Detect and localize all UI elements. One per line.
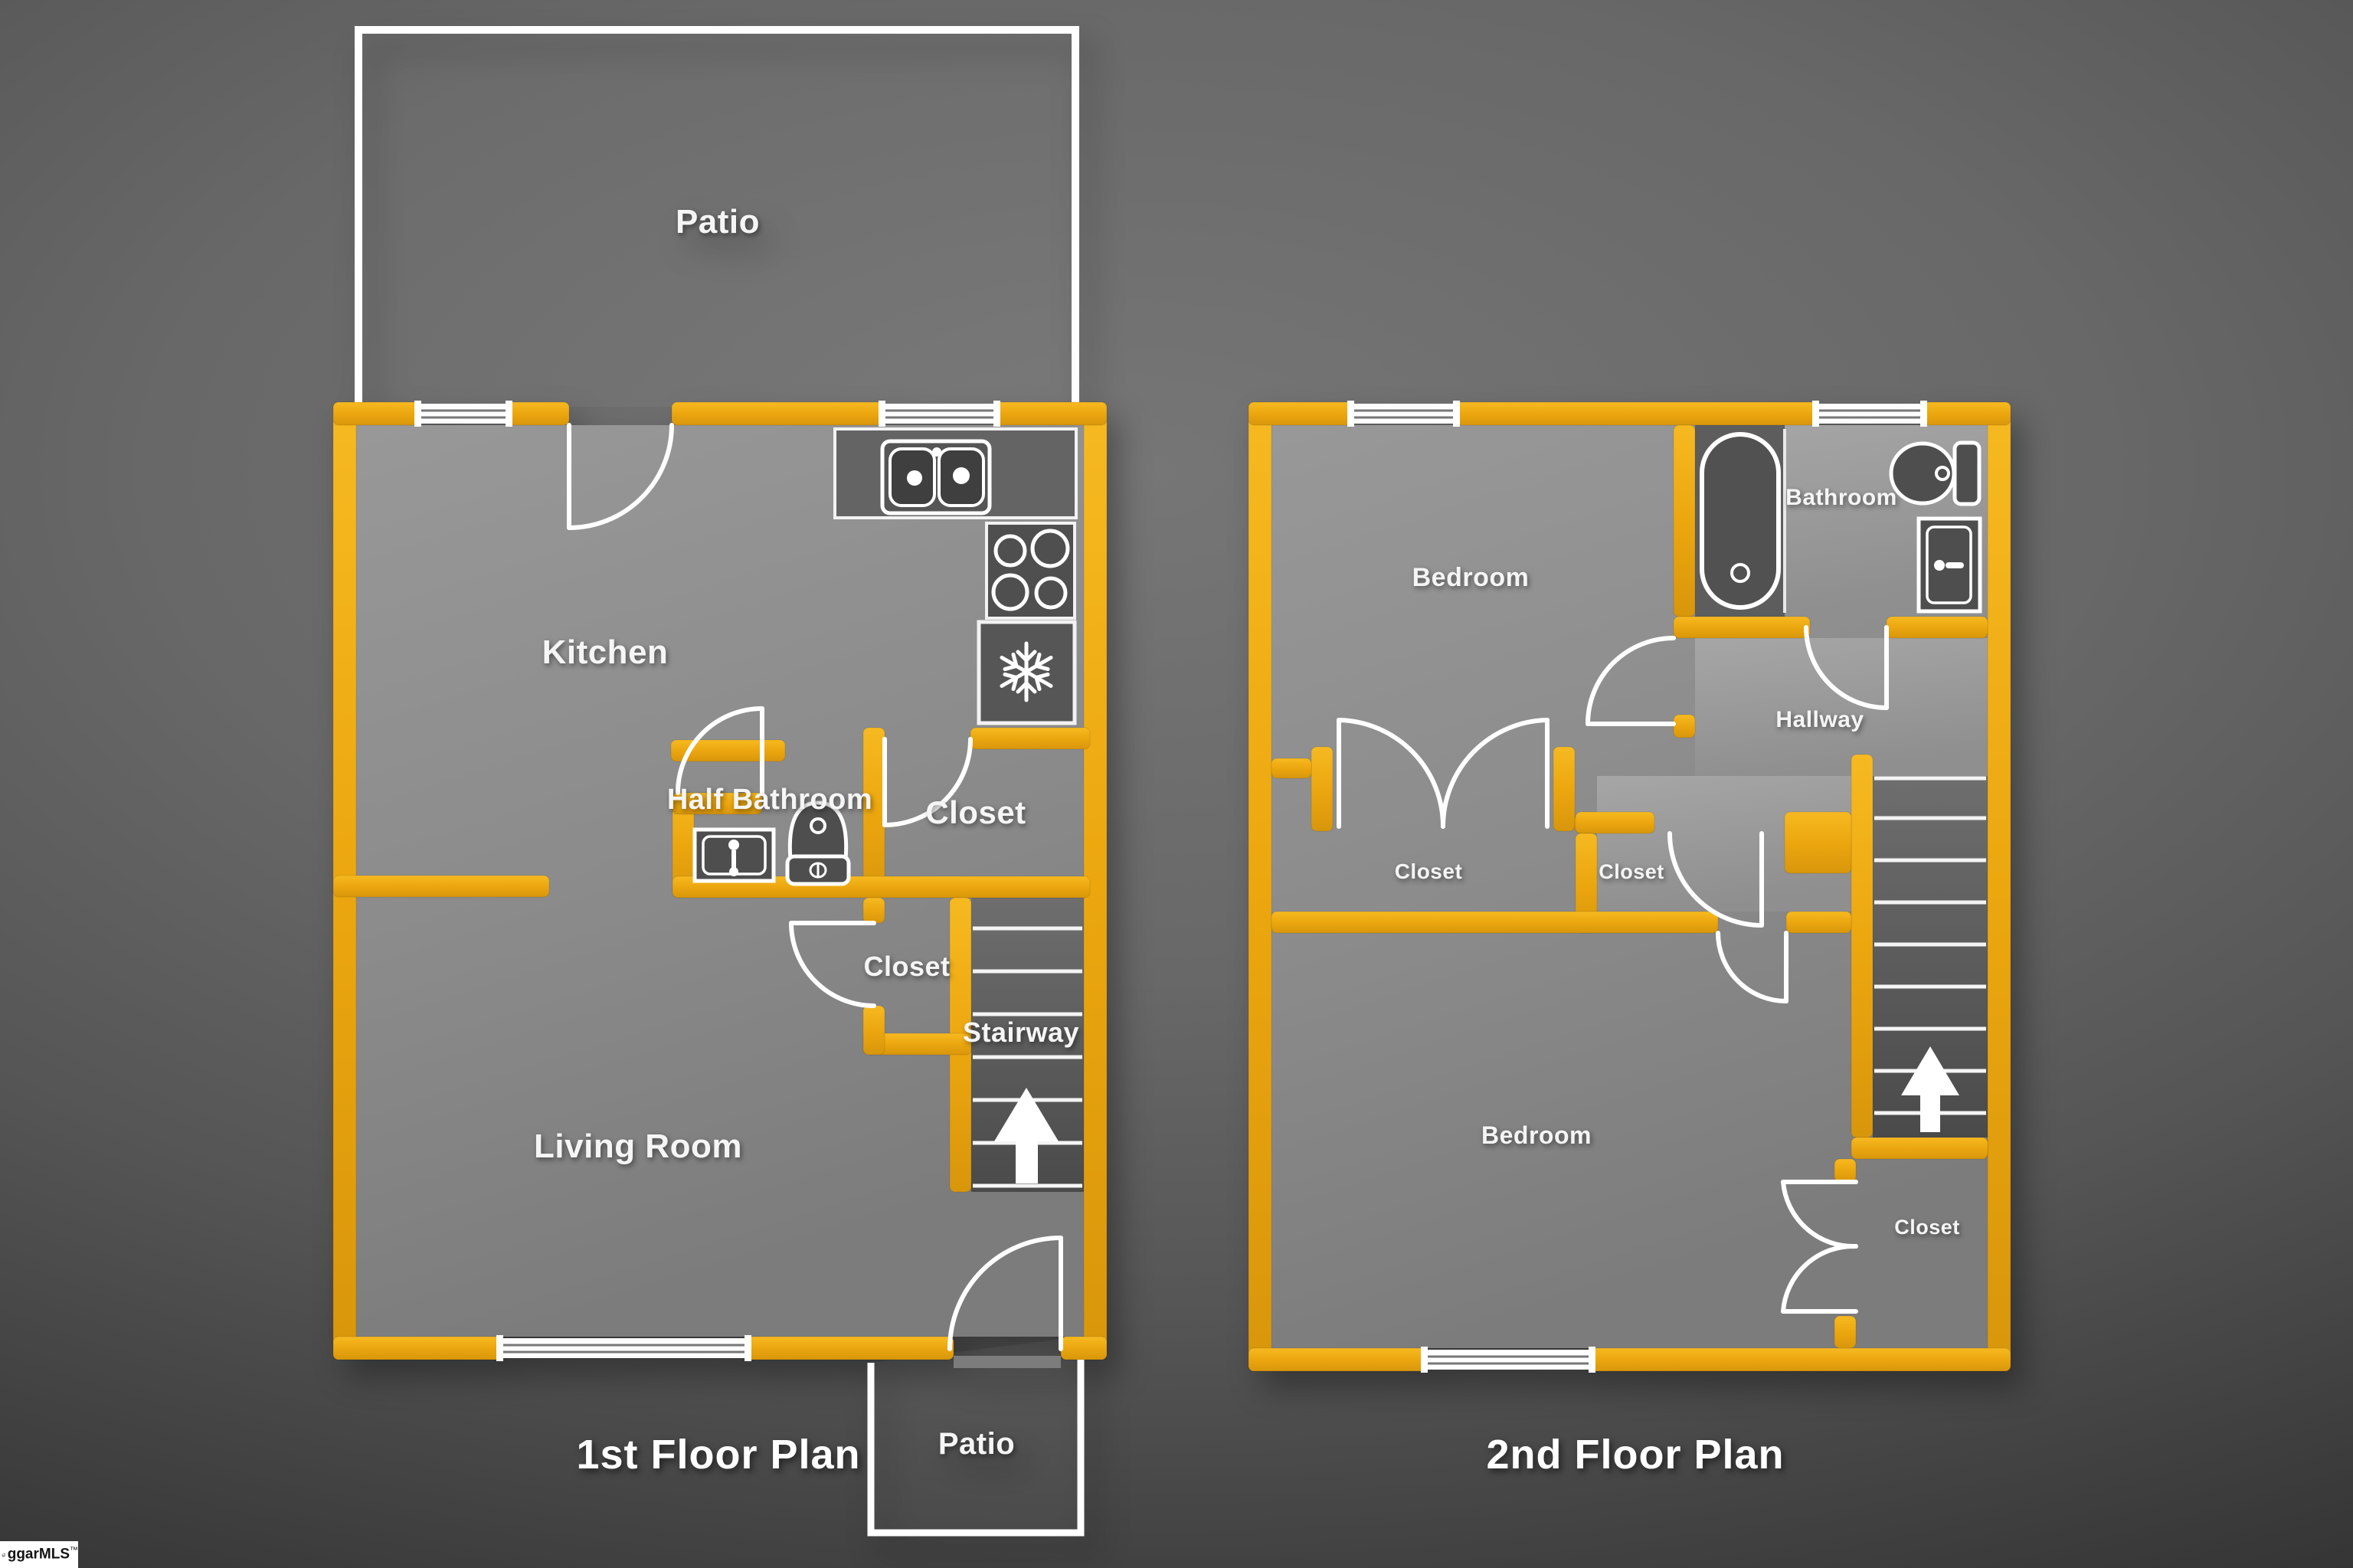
- window: [1421, 1347, 1595, 1373]
- first-floor-plan: Patio Kitchen Half Bathroom Closet Close…: [333, 30, 1107, 1533]
- window: [1347, 401, 1460, 427]
- vanity-sink-icon: [1919, 519, 1980, 611]
- window: [414, 401, 512, 427]
- room-label-closet-center: Closet: [1599, 860, 1664, 883]
- room-label-bedroom-bottom: Bedroom: [1481, 1121, 1592, 1149]
- room-label-bathroom: Bathroom: [1785, 485, 1897, 510]
- room-label-closet-upper: Closet: [925, 794, 1026, 830]
- window: [496, 1335, 751, 1361]
- room-label-patio-bottom: Patio: [938, 1427, 1015, 1461]
- second-floor-plan: Bedroom Bathroom Hallway Closet Closet B…: [1248, 401, 2011, 1373]
- room-label-living-room: Living Room: [534, 1128, 742, 1165]
- room-label-stairway: Stairway: [963, 1016, 1079, 1048]
- toilet-icon: [1891, 443, 1979, 504]
- room-label-half-bathroom: Half Bathroom: [667, 784, 872, 816]
- room-label-closet-lower: Closet: [863, 951, 950, 982]
- bathtub-icon: [1702, 429, 1785, 613]
- room-label-kitchen: Kitchen: [542, 633, 669, 671]
- first-floor-title: 1st Floor Plan: [576, 1432, 860, 1478]
- room-label-closet-left: Closet: [1395, 859, 1463, 883]
- room-label-bedroom-top: Bedroom: [1412, 563, 1530, 592]
- room-label-hallway: Hallway: [1775, 707, 1864, 732]
- patio-door-threshold: [954, 1356, 1061, 1368]
- house-icon: [2, 1543, 6, 1566]
- second-floor-title: 2nd Floor Plan: [1486, 1432, 1784, 1478]
- floorplan-image: Patio Kitchen Half Bathroom Closet Close…: [0, 0, 2353, 1568]
- window: [1812, 401, 1927, 427]
- window: [879, 401, 1000, 427]
- floorplan-drawing: Patio Kitchen Half Bathroom Closet Close…: [0, 0, 2353, 1568]
- room-label-closet-bottom: Closet: [1894, 1216, 1960, 1239]
- mls-watermark: ggarMLS™: [0, 1541, 78, 1568]
- kitchen-sink-icon: [882, 441, 990, 513]
- vanity-sink-icon: [695, 830, 774, 881]
- watermark-text: ggarMLS™: [8, 1546, 78, 1563]
- room-label-patio-top: Patio: [676, 203, 760, 241]
